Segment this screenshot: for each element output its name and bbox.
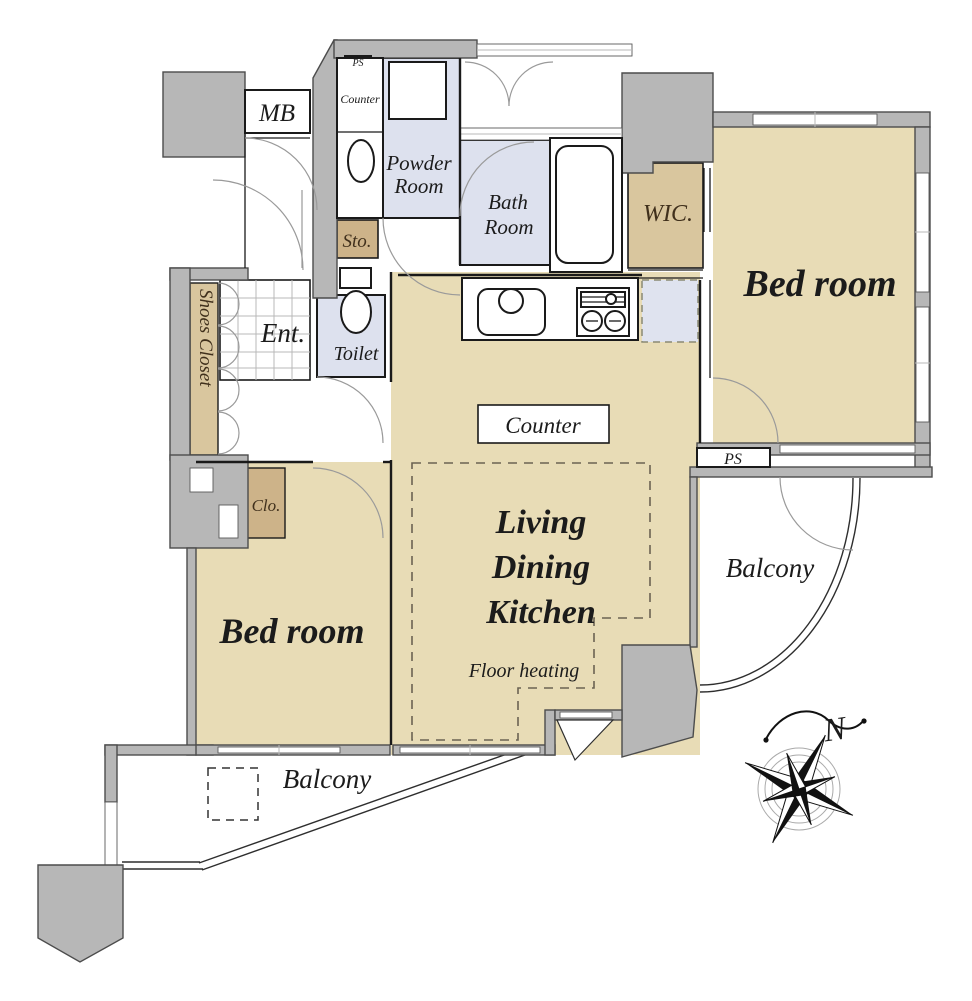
label-ldk-2: Dining	[491, 549, 590, 586]
wall-ldk-step	[545, 710, 555, 755]
label-powder-1: Powder	[385, 151, 452, 175]
wall-balcony-right-top	[690, 467, 932, 477]
stove-icon	[577, 288, 629, 336]
label-powder-2: Room	[394, 174, 444, 198]
floorplan-page: MB PS Counter Powder Room Bath Room WIC.…	[0, 0, 972, 1001]
toilet-icon	[340, 268, 371, 333]
sink-icon	[478, 289, 545, 335]
label-bedroom-main: Bed room	[742, 263, 896, 305]
counter-label-box: Counter	[478, 405, 609, 443]
wall-mid-block	[622, 73, 713, 173]
compass-rose-icon: N	[719, 709, 879, 869]
refrigerator-space	[642, 280, 698, 342]
label-shoes-closet: Shoes Closet	[195, 289, 216, 387]
balcony-hatch-square	[208, 768, 258, 820]
label-vanity-counter: Counter	[340, 92, 380, 106]
label-storage: Sto.	[342, 231, 371, 252]
label-closet: Clo.	[252, 496, 281, 515]
label-toilet: Toilet	[334, 343, 379, 365]
vanity-counter	[337, 58, 383, 218]
floorplan-drawing: MB PS Counter Powder Room Bath Room WIC.…	[0, 0, 972, 1001]
wall-niche-1	[190, 468, 213, 492]
washbasin-icon	[348, 140, 374, 182]
kitchen-counter	[462, 278, 638, 340]
label-ps-bottom: PS	[723, 451, 742, 468]
label-compass-north: N	[820, 710, 850, 749]
window-balcony-left	[105, 802, 117, 866]
label-balcony-bottom: Balcony	[283, 764, 371, 794]
label-bath-2: Room	[484, 215, 534, 239]
wall-niche-2	[219, 505, 238, 538]
label-ps-top: PS	[351, 58, 363, 69]
compass-north-mark: N	[763, 710, 866, 749]
label-wic: WIC.	[643, 201, 693, 227]
bathtub-icon	[550, 138, 622, 272]
wall-left-outer	[170, 268, 190, 460]
label-entrance: Ent.	[260, 318, 305, 348]
label-floor-heating: Floor heating	[468, 660, 580, 682]
wall-balcony-bottom-left	[105, 745, 117, 802]
label-meter-box: MB	[258, 100, 295, 127]
label-ldk-1: Living	[495, 504, 587, 541]
label-bedroom-second: Bed room	[218, 611, 364, 651]
wall-pentagon-pillar	[38, 865, 123, 962]
label-balcony-right: Balcony	[726, 553, 814, 583]
wall-top-left-block	[163, 72, 245, 157]
label-ldk-3: Kitchen	[485, 594, 596, 631]
label-kitchen-counter: Counter	[505, 413, 581, 438]
wall-balcony-right-left	[690, 477, 697, 647]
wall-bedroom2-left	[187, 548, 196, 755]
wall-center-vertical	[313, 40, 337, 298]
label-bath-1: Bath	[488, 190, 528, 214]
laundry-machine-space	[389, 62, 446, 119]
